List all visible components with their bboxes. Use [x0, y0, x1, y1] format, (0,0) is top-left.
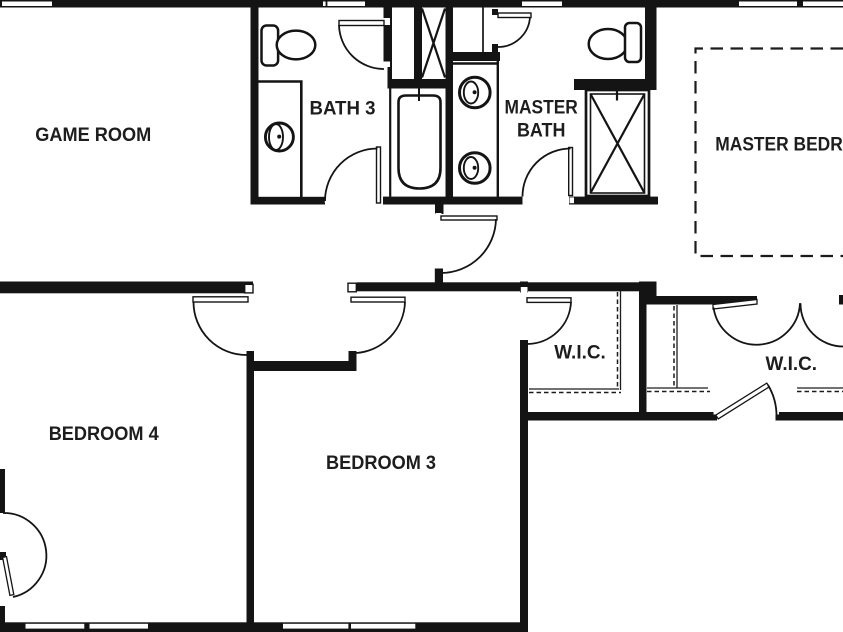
svg-text:MASTER BEDROOM: MASTER BEDROOM: [715, 133, 843, 155]
svg-text:BEDROOM 3: BEDROOM 3: [326, 452, 436, 474]
svg-text:W.I.C.: W.I.C.: [766, 353, 818, 375]
svg-text:MASTER: MASTER: [505, 97, 578, 119]
svg-text:BATH 3: BATH 3: [310, 97, 376, 119]
svg-text:BATH: BATH: [517, 120, 566, 142]
svg-text:GAME ROOM: GAME ROOM: [35, 124, 151, 146]
svg-text:BEDROOM 4: BEDROOM 4: [49, 423, 159, 445]
svg-text:W.I.C.: W.I.C.: [554, 341, 606, 363]
